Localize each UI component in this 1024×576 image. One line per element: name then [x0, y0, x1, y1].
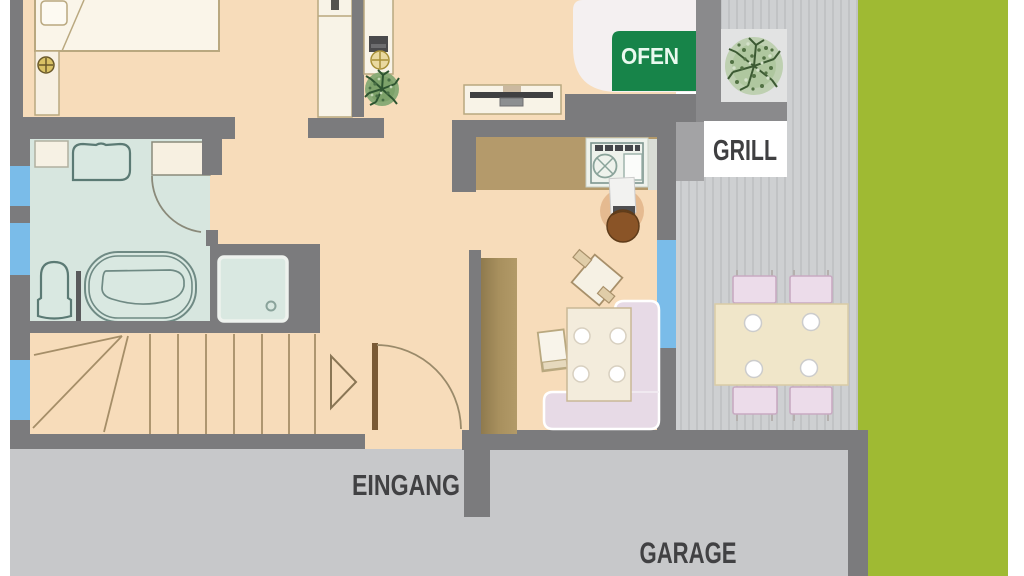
svg-text:GRILL: GRILL: [713, 135, 777, 167]
svg-text:GARAGE: GARAGE: [640, 537, 737, 570]
svg-text:EINGANG: EINGANG: [352, 470, 460, 502]
svg-text:OFEN: OFEN: [621, 43, 679, 69]
